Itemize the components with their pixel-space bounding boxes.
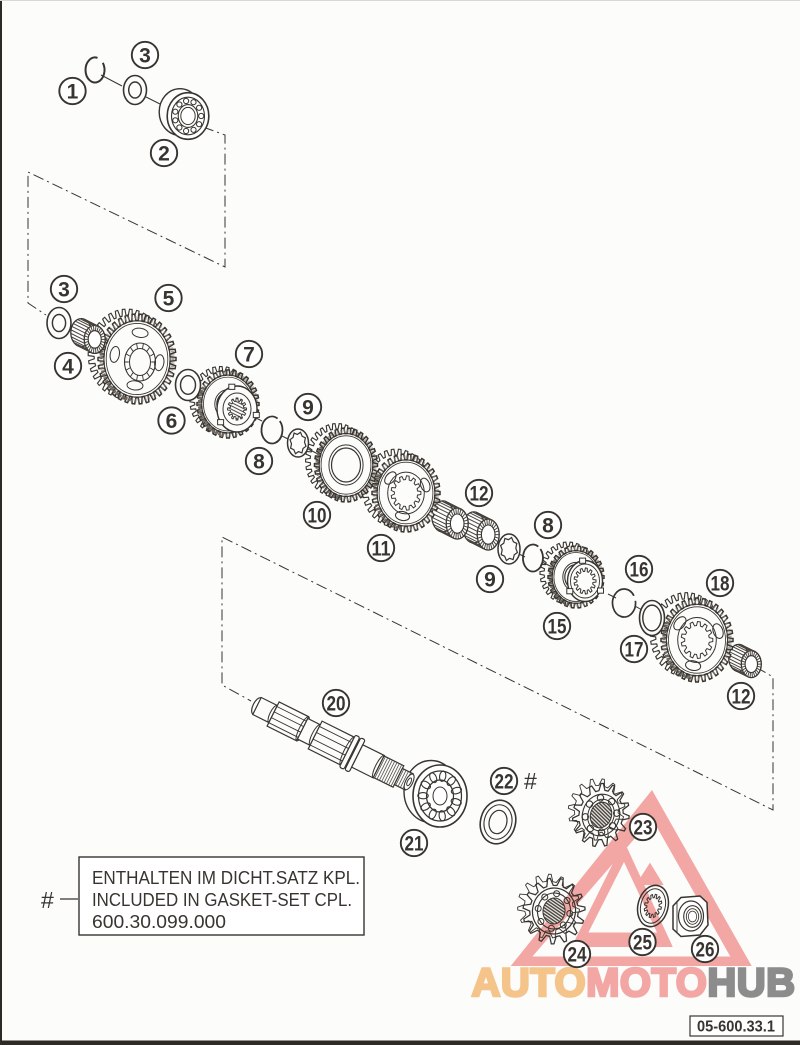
svg-text:INCLUDED IN GASKET-SET CPL.: INCLUDED IN GASKET-SET CPL. [92, 889, 352, 910]
svg-text:22: 22 [495, 771, 514, 794]
svg-text:05-600.33.1: 05-600.33.1 [697, 1019, 775, 1036]
svg-text:#: # [41, 887, 54, 913]
svg-text:6: 6 [166, 410, 178, 433]
svg-text:11: 11 [372, 538, 391, 561]
svg-text:24: 24 [568, 944, 587, 967]
svg-text:12: 12 [732, 686, 751, 709]
svg-text:15: 15 [548, 616, 567, 639]
svg-text:2: 2 [158, 143, 170, 166]
svg-text:3: 3 [139, 45, 151, 68]
svg-text:5: 5 [163, 288, 175, 311]
svg-text:4: 4 [62, 356, 74, 379]
svg-text:1: 1 [67, 81, 79, 104]
svg-text:21: 21 [405, 833, 424, 856]
svg-text:7: 7 [243, 344, 255, 367]
svg-text:8: 8 [542, 515, 554, 538]
svg-text:8: 8 [253, 451, 265, 474]
svg-text:12: 12 [470, 483, 489, 506]
svg-text:25: 25 [633, 932, 652, 955]
svg-text:18: 18 [711, 573, 730, 596]
svg-text:20: 20 [327, 693, 346, 716]
svg-text:9: 9 [484, 569, 496, 592]
svg-text:600.30.099.000: 600.30.099.000 [92, 911, 226, 932]
svg-text:ENTHALTEN IM DICHT.SATZ KPL.: ENTHALTEN IM DICHT.SATZ KPL. [92, 867, 360, 888]
svg-text:9: 9 [302, 397, 314, 420]
svg-text:23: 23 [634, 817, 653, 840]
svg-text:#: # [524, 768, 537, 794]
svg-text:17: 17 [625, 639, 644, 662]
svg-text:16: 16 [630, 559, 649, 582]
svg-text:10: 10 [308, 505, 327, 528]
svg-text:3: 3 [58, 279, 70, 302]
svg-text:26: 26 [696, 939, 715, 962]
svg-text:AUTOMOTOHUB: AUTOMOTOHUB [472, 961, 796, 1005]
